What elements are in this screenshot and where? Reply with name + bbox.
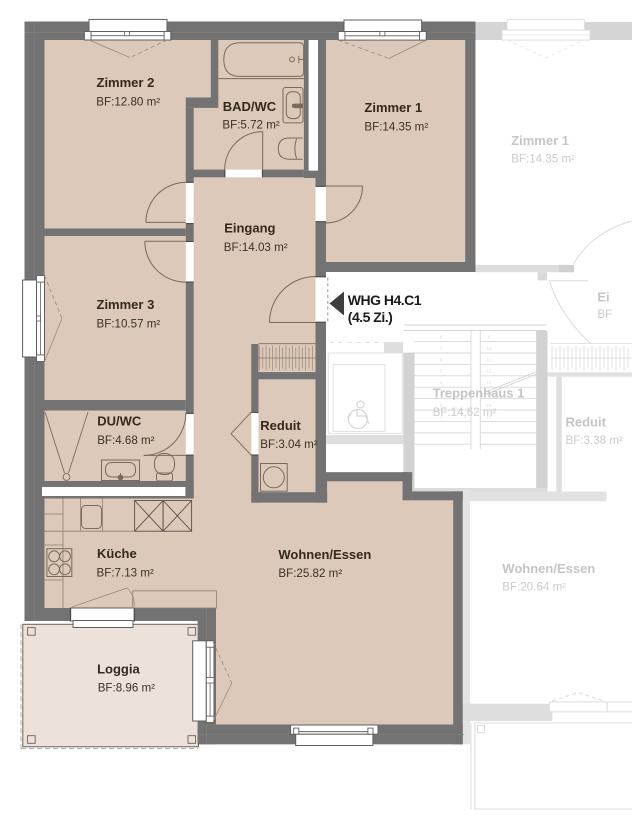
svg-text:(4.5 Zi.): (4.5 Zi.)	[348, 309, 393, 325]
svg-text:Wohnen/Essen: Wohnen/Essen	[278, 547, 371, 562]
svg-text:Zimmer 2: Zimmer 2	[97, 75, 155, 90]
svg-text:Küche: Küche	[97, 546, 137, 561]
svg-text:Ei: Ei	[597, 289, 609, 304]
svg-text:BF:8.96 m²: BF:8.96 m²	[98, 682, 155, 695]
svg-text:Zimmer 3: Zimmer 3	[97, 297, 155, 312]
svg-text:BF:3.04 m²: BF:3.04 m²	[260, 438, 317, 451]
svg-text:12: 12	[486, 369, 492, 374]
svg-text:BF:14.35 m²: BF:14.35 m²	[511, 153, 575, 166]
svg-text:Reduit: Reduit	[566, 415, 607, 430]
svg-text:BF:4.68 m²: BF:4.68 m²	[97, 434, 154, 447]
svg-text:BF:14.03 m²: BF:14.03 m²	[224, 241, 288, 254]
svg-text:10: 10	[486, 346, 492, 351]
svg-text:Reduit: Reduit	[260, 418, 301, 433]
svg-text:Wohnen/Essen: Wohnen/Essen	[502, 561, 595, 576]
svg-text:BF:25.82 m²: BF:25.82 m²	[278, 567, 342, 580]
svg-text:Eingang: Eingang	[224, 221, 275, 236]
svg-text:BAD/WC: BAD/WC	[223, 99, 277, 114]
svg-text:BF:10.57 m²: BF:10.57 m²	[97, 318, 161, 331]
svg-text:BF:20.64 m²: BF:20.64 m²	[502, 580, 566, 593]
svg-text:Zimmer 1: Zimmer 1	[511, 133, 569, 148]
svg-text:DU/WC: DU/WC	[97, 414, 142, 429]
svg-text:BF:7.13 m²: BF:7.13 m²	[97, 566, 154, 579]
svg-text:BF:12.80 m²: BF:12.80 m²	[96, 95, 160, 108]
svg-text:Zimmer 1: Zimmer 1	[364, 100, 422, 115]
svg-text:WHG H4.C1: WHG H4.C1	[348, 292, 422, 308]
svg-text:BF:3.38 m²: BF:3.38 m²	[566, 434, 623, 447]
svg-text:BF:14,62 m²: BF:14,62 m²	[433, 406, 497, 419]
svg-text:11: 11	[487, 357, 492, 362]
svg-text:Loggia: Loggia	[97, 661, 140, 676]
svg-text:Treppenhaus 1: Treppenhaus 1	[433, 385, 525, 400]
svg-text:BF:5.72 m²: BF:5.72 m²	[222, 118, 279, 131]
svg-text:BF: BF	[597, 308, 612, 321]
svg-text:BF:14.35 m²: BF:14.35 m²	[364, 120, 428, 133]
